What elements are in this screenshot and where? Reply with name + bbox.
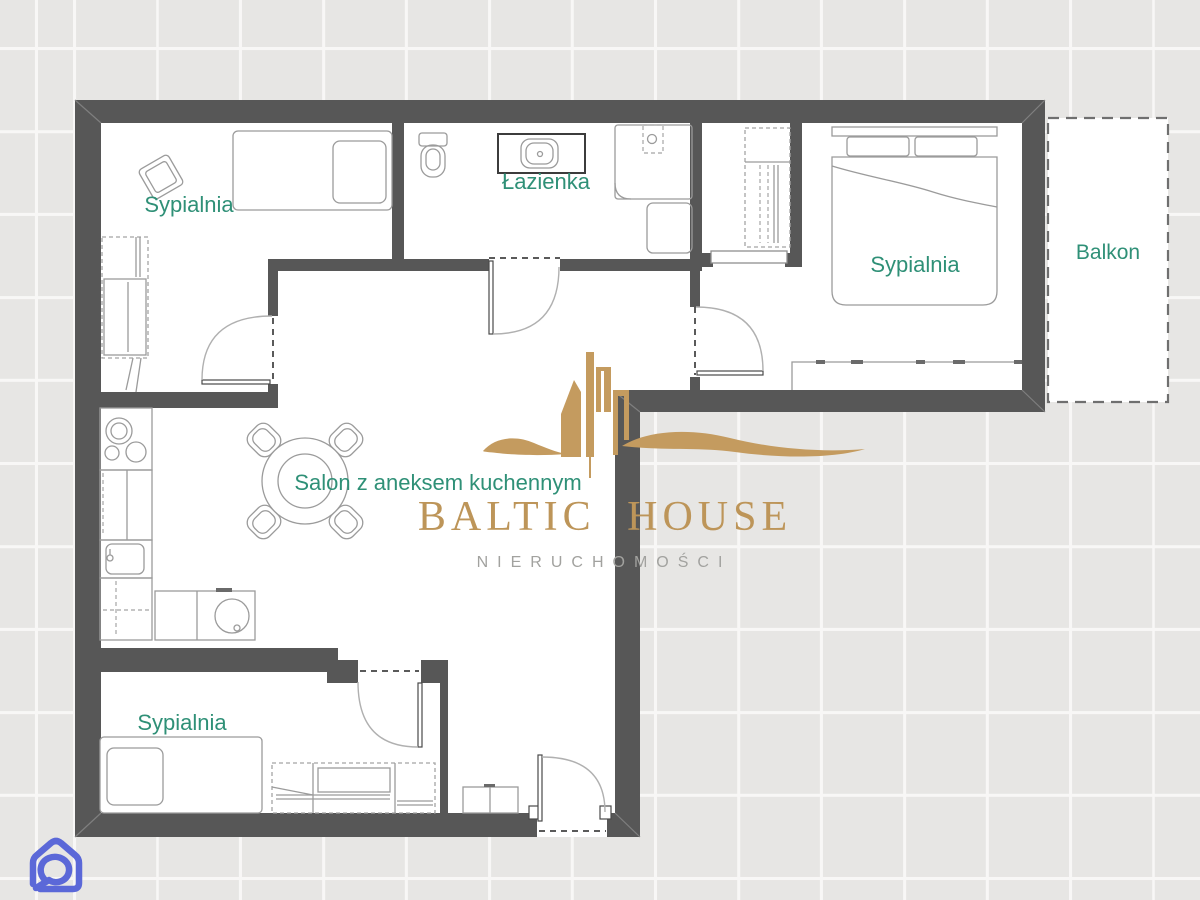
house-spiral-icon — [33, 841, 79, 889]
label-bedroom-bottom-left: Sypialnia — [137, 710, 227, 735]
floor-plan-image: Sypialnia Łazienka Sypialnia Salon z ane… — [0, 0, 1200, 900]
watermark-brand-text: BALTIC HOUSE — [418, 494, 792, 540]
label-balcony: Balkon — [1076, 241, 1140, 264]
floor-plan-svg: Sypialnia Łazienka Sypialnia Salon z ane… — [0, 0, 1200, 900]
closet-wardrobe — [745, 128, 790, 247]
label-bathroom: Łazienka — [502, 169, 591, 194]
label-bedroom-right: Sypialnia — [870, 252, 960, 277]
watermark-tagline-text: NIERUCHOMOŚCI — [477, 552, 732, 571]
label-bedroom-top-left: Sypialnia — [144, 192, 234, 217]
sink-vanity — [498, 134, 585, 173]
label-living-room: Salon z aneksem kuchennym — [294, 470, 581, 495]
bed — [233, 131, 392, 210]
desk-dresser — [272, 763, 435, 813]
closet-niche-sill — [711, 251, 787, 263]
